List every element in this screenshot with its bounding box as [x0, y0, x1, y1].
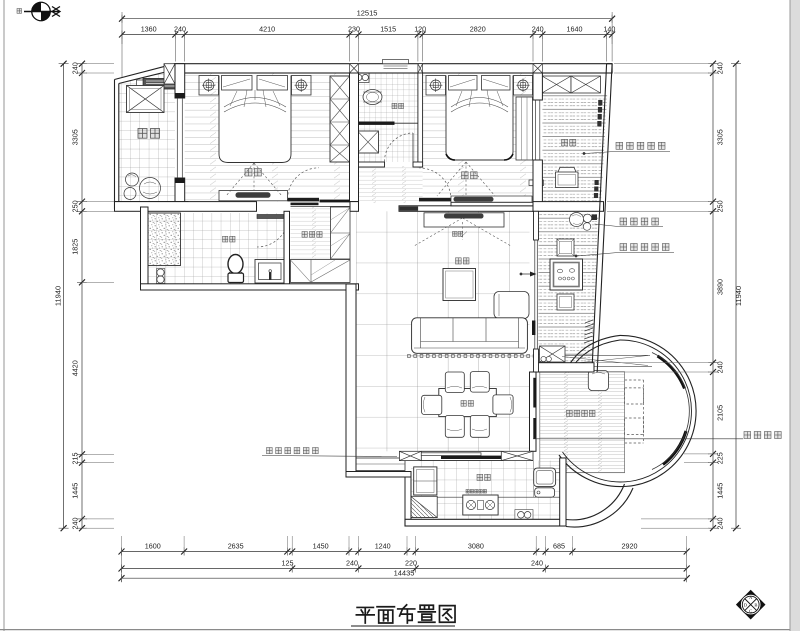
svg-text:230: 230	[348, 25, 360, 34]
svg-text:11940: 11940	[54, 286, 63, 306]
svg-text:3305: 3305	[71, 129, 80, 145]
svg-text:3080: 3080	[468, 542, 484, 551]
svg-text:1515: 1515	[380, 25, 396, 34]
svg-text:1445: 1445	[71, 483, 80, 499]
svg-text:240: 240	[531, 559, 543, 568]
svg-text:B: B	[754, 603, 757, 608]
svg-text:3305: 3305	[716, 129, 725, 145]
svg-text:240: 240	[71, 518, 80, 530]
svg-text:1240: 1240	[375, 542, 391, 551]
svg-text:240: 240	[716, 518, 725, 530]
svg-text:1360: 1360	[141, 25, 157, 34]
svg-text:125: 125	[282, 559, 294, 568]
svg-text:240: 240	[532, 25, 544, 34]
svg-text:240: 240	[716, 62, 725, 74]
svg-text:215: 215	[71, 453, 80, 465]
svg-text:C: C	[749, 609, 752, 614]
svg-text:250: 250	[716, 200, 725, 212]
svg-text:2920: 2920	[622, 542, 638, 551]
svg-text:220: 220	[405, 559, 417, 568]
svg-text:225: 225	[716, 452, 725, 464]
svg-text:240: 240	[346, 559, 358, 568]
svg-text:4420: 4420	[71, 360, 80, 376]
svg-text:3890: 3890	[716, 279, 725, 295]
svg-text:1450: 1450	[313, 542, 329, 551]
svg-text:1825: 1825	[71, 239, 80, 255]
svg-text:140: 140	[603, 25, 615, 34]
svg-text:4210: 4210	[259, 25, 275, 34]
svg-text:14435: 14435	[394, 569, 415, 578]
svg-text:2635: 2635	[228, 542, 244, 551]
svg-text:1640: 1640	[567, 25, 583, 34]
svg-text:2820: 2820	[470, 25, 486, 34]
svg-text:240: 240	[71, 62, 80, 74]
svg-text:240: 240	[174, 25, 186, 34]
svg-text:1600: 1600	[145, 542, 161, 551]
svg-text:250: 250	[71, 200, 80, 212]
svg-text:1445: 1445	[716, 483, 725, 499]
svg-text:2105: 2105	[716, 405, 725, 421]
svg-text:12515: 12515	[357, 9, 378, 18]
svg-text:120: 120	[414, 25, 426, 34]
svg-text:240: 240	[716, 361, 725, 373]
svg-text:11940: 11940	[734, 286, 743, 306]
svg-text:685: 685	[553, 542, 565, 551]
